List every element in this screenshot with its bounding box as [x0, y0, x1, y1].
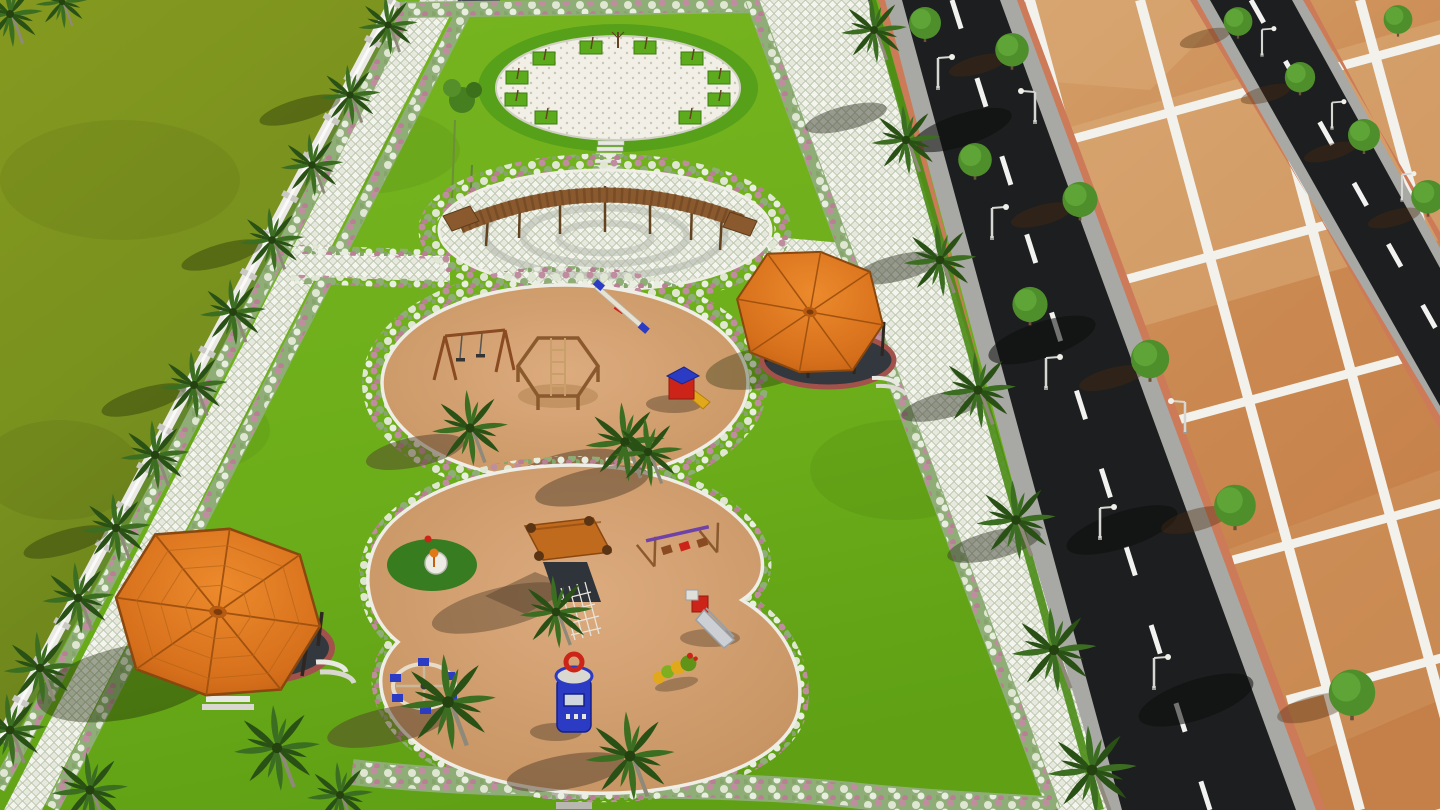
scene-canvas — [0, 0, 1440, 810]
park-render — [0, 0, 1440, 810]
top-flower-border — [400, 5, 762, 10]
